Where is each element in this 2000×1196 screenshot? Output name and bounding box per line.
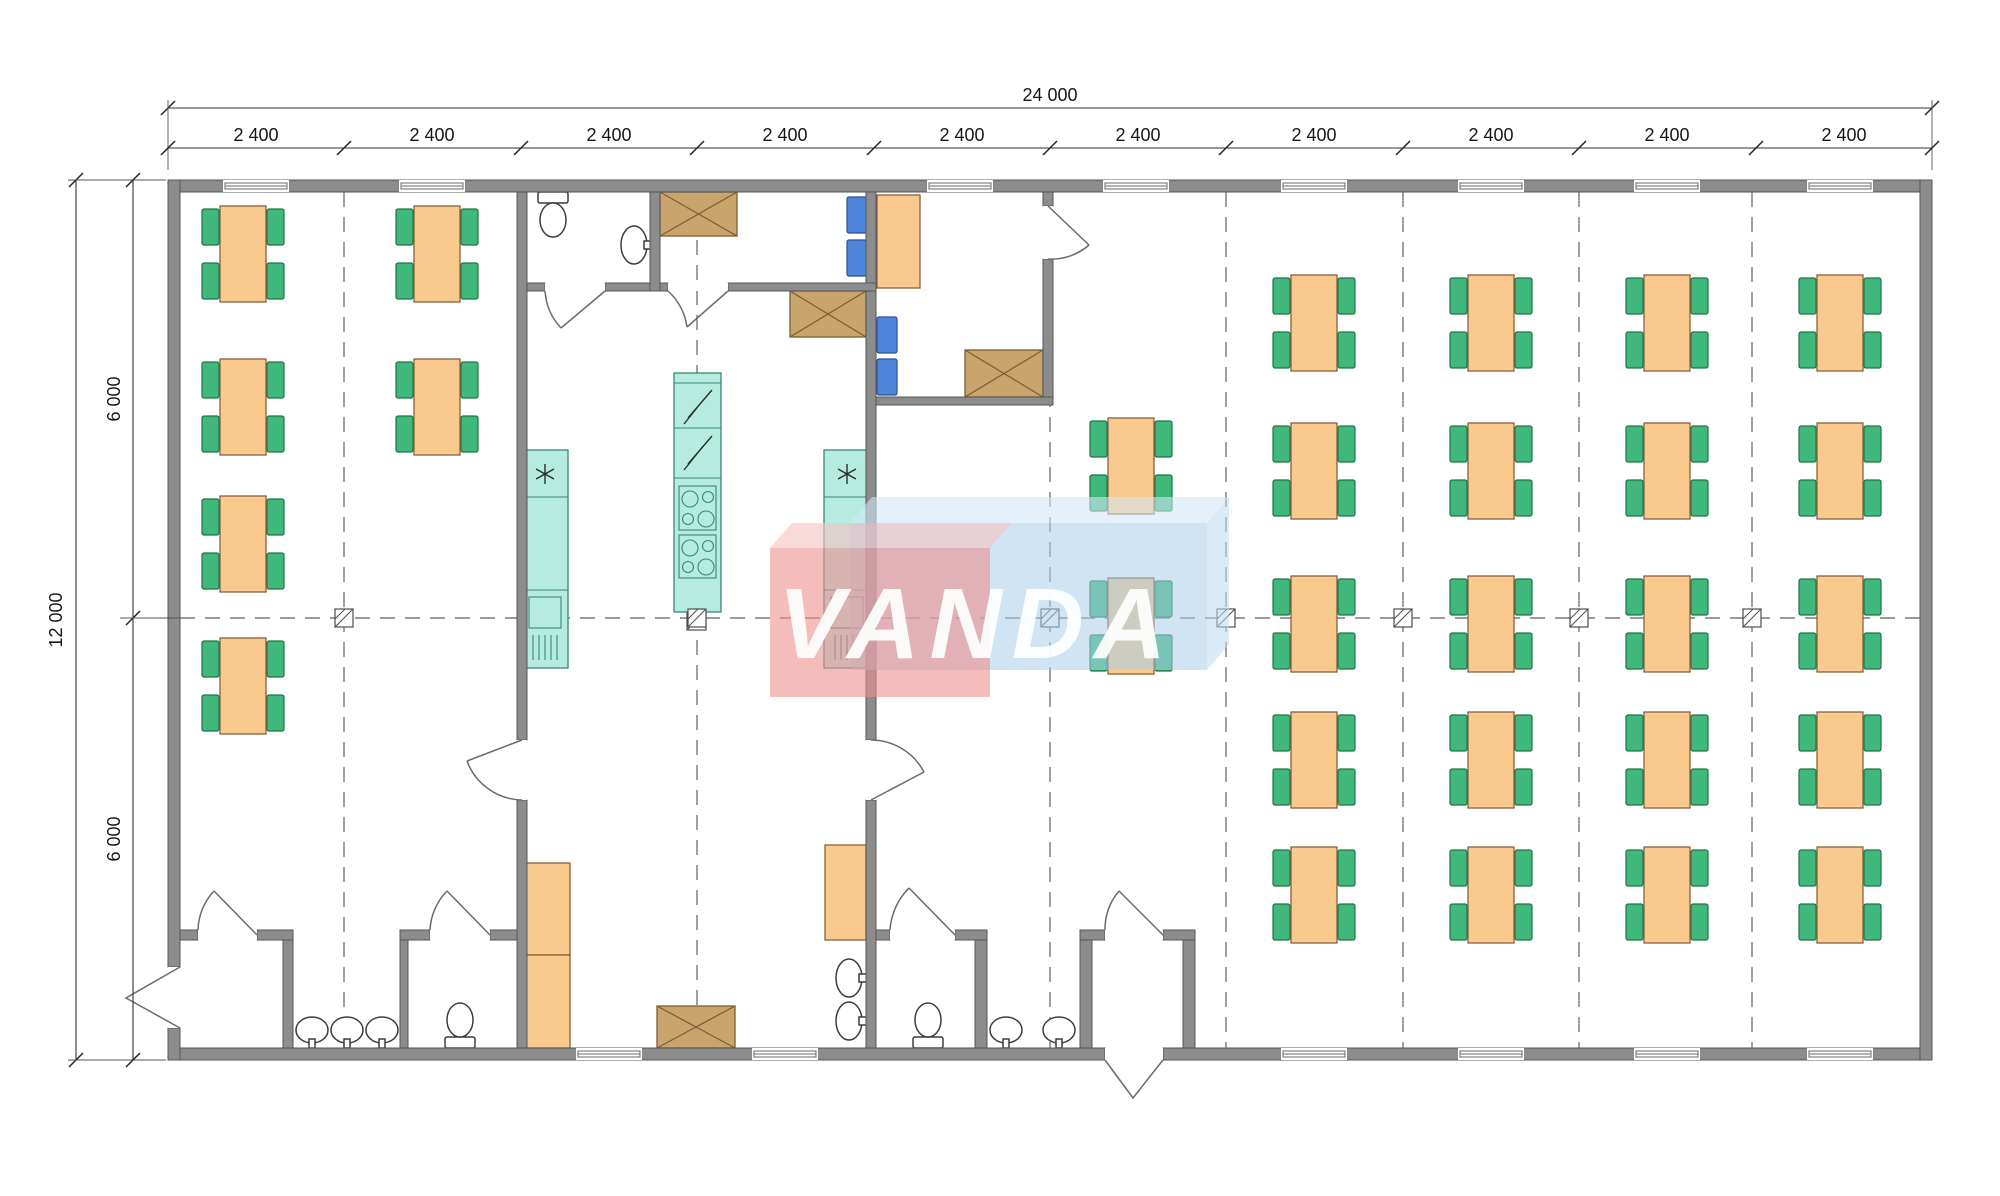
window-icon bbox=[223, 180, 289, 192]
dim-module: 2 400 bbox=[233, 125, 278, 145]
door-icon bbox=[668, 291, 728, 327]
dim-module: 2 400 bbox=[1821, 125, 1866, 145]
vanda-watermark: VANDA bbox=[770, 497, 1229, 697]
dim-total-depth: 12 000 bbox=[46, 592, 66, 647]
column-grid-marker bbox=[688, 609, 706, 627]
kitchen-cabinet bbox=[525, 863, 570, 1048]
door-icon bbox=[430, 891, 490, 935]
window-icon bbox=[1458, 180, 1524, 192]
entrance-door-icon bbox=[1105, 1060, 1163, 1098]
watermark-red-top-face bbox=[770, 523, 1012, 548]
column-grid-marker bbox=[335, 609, 353, 627]
window-icon bbox=[1458, 1048, 1524, 1060]
window-icon bbox=[1807, 1048, 1873, 1060]
dim-module: 2 400 bbox=[1115, 125, 1160, 145]
door-icon bbox=[871, 740, 924, 800]
door-icon bbox=[198, 891, 257, 935]
dim-module: 2 400 bbox=[586, 125, 631, 145]
column-grid-marker bbox=[1394, 609, 1412, 627]
door-icon bbox=[467, 740, 522, 800]
dim-total-width: 24 000 bbox=[1022, 85, 1077, 105]
window-icon bbox=[1807, 180, 1873, 192]
dim-half-depth: 6 000 bbox=[104, 376, 124, 421]
watermark-blue-top-face bbox=[850, 497, 1229, 523]
door-icon bbox=[890, 888, 955, 935]
dim-module: 2 400 bbox=[409, 125, 454, 145]
window-icon bbox=[1103, 180, 1169, 192]
dim-module: 2 400 bbox=[762, 125, 807, 145]
dim-module: 2 400 bbox=[939, 125, 984, 145]
window-icon bbox=[752, 1048, 818, 1060]
floor-plan-drawing: VANDA 24 000 2 400 2 400 2 400 2 400 2 4… bbox=[0, 0, 2000, 1196]
washbasin-icon bbox=[296, 1017, 398, 1048]
wall-exterior-left bbox=[168, 1028, 180, 1060]
wall-exterior-right bbox=[1920, 180, 1932, 1060]
column-grid-marker bbox=[1570, 609, 1588, 627]
urinal-icon bbox=[990, 1017, 1075, 1048]
floor-plan-svg: VANDA 24 000 2 400 2 400 2 400 2 400 2 4… bbox=[0, 0, 2000, 1196]
watermark-text: VANDA bbox=[778, 568, 1176, 680]
wall-exterior-left bbox=[168, 180, 180, 967]
dim-module: 2 400 bbox=[1644, 125, 1689, 145]
dim-half-depth: 6 000 bbox=[104, 816, 124, 861]
window-icon bbox=[1281, 1048, 1347, 1060]
dim-module: 2 400 bbox=[1468, 125, 1513, 145]
window-icon bbox=[576, 1048, 642, 1060]
column-grid-marker bbox=[1743, 609, 1761, 627]
door-icon bbox=[1105, 891, 1163, 935]
window-icon bbox=[1634, 180, 1700, 192]
door-icon bbox=[545, 291, 605, 328]
window-icon bbox=[1634, 1048, 1700, 1060]
dining-table-group bbox=[202, 206, 478, 734]
window-icon bbox=[399, 180, 465, 192]
watermark-blue-side-face bbox=[1207, 497, 1229, 670]
dim-module: 2 400 bbox=[1291, 125, 1336, 145]
window-icon bbox=[1281, 180, 1347, 192]
door-icon bbox=[1048, 206, 1089, 259]
window-icon bbox=[927, 180, 993, 192]
kitchen-island-stove bbox=[674, 373, 721, 630]
